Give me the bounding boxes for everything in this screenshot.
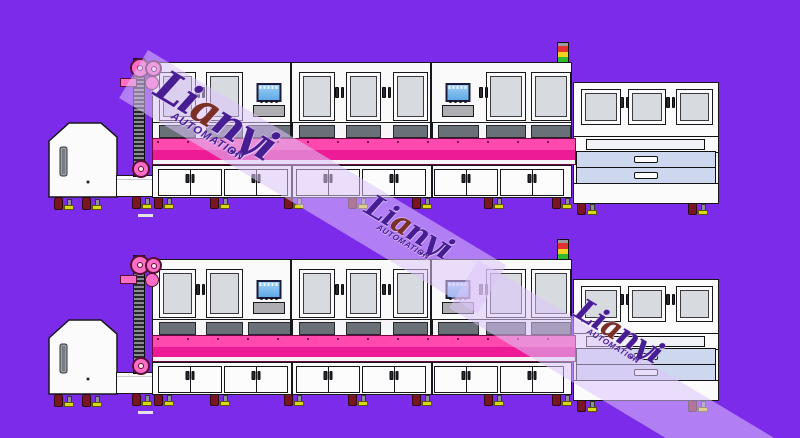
cabinet-window bbox=[393, 72, 428, 121]
elevator-pulley-bottom bbox=[132, 357, 150, 375]
table-inset bbox=[346, 125, 381, 138]
hopper-outfeed-table bbox=[116, 372, 153, 394]
door-handle-pair bbox=[620, 294, 629, 305]
cabinet-window bbox=[346, 269, 381, 318]
hopper-feeder bbox=[48, 122, 118, 198]
door-handle-pair bbox=[666, 97, 675, 108]
module-divider bbox=[291, 363, 293, 394]
dimension-mark bbox=[138, 214, 153, 217]
cabinet-window bbox=[206, 269, 243, 318]
door-handle-pair bbox=[620, 97, 629, 108]
station-window bbox=[628, 286, 666, 322]
door-handle-pair bbox=[252, 371, 261, 380]
door-handle-pair bbox=[186, 371, 195, 380]
module-divider bbox=[430, 63, 432, 123]
elevator-pulley-top-right bbox=[145, 257, 162, 274]
module-divider bbox=[430, 123, 433, 139]
elevator-pulley-bottom bbox=[132, 160, 150, 178]
door-handle-pair bbox=[382, 284, 391, 295]
station-drawer bbox=[576, 151, 716, 168]
hopper-outfeed-table bbox=[116, 175, 153, 197]
door-handle-pair bbox=[528, 371, 537, 380]
cabinet-door-pair bbox=[224, 366, 288, 393]
cabinet-window bbox=[299, 269, 335, 318]
module-divider bbox=[431, 363, 433, 394]
cabinet-window bbox=[486, 72, 526, 121]
caster bbox=[132, 196, 151, 209]
cabinet-door-pair bbox=[434, 169, 498, 196]
cabinet-door-pair bbox=[158, 366, 222, 393]
cabinet-door-pair bbox=[434, 366, 498, 393]
andon-signal-tower bbox=[557, 239, 569, 261]
cabinet-window bbox=[159, 269, 196, 318]
hmi-buttons bbox=[449, 100, 467, 103]
door-handle-pair bbox=[324, 371, 333, 380]
door-handle-pair bbox=[335, 87, 344, 98]
cabinet-door-pair bbox=[296, 366, 360, 393]
door-handle-pair bbox=[196, 284, 205, 295]
hmi-buttons bbox=[260, 297, 278, 300]
module-divider bbox=[430, 320, 433, 336]
table-inset bbox=[206, 322, 243, 335]
andon-signal-tower bbox=[557, 42, 569, 64]
cabinet-window bbox=[531, 72, 571, 121]
table-inset bbox=[393, 125, 428, 138]
cabinet-door-pair bbox=[158, 169, 222, 196]
door-handle-pair bbox=[390, 174, 399, 183]
table-inset bbox=[159, 322, 196, 335]
cabinet-window bbox=[346, 72, 381, 121]
cabinet-window bbox=[299, 72, 335, 121]
station-drawer bbox=[576, 167, 716, 184]
table-inset bbox=[531, 125, 571, 138]
cabinet-door-pair bbox=[500, 169, 564, 196]
door-handle-pair bbox=[335, 284, 344, 295]
door-handle-pair bbox=[666, 294, 675, 305]
strip-window bbox=[586, 139, 705, 150]
machine-lower-cabinets bbox=[152, 362, 572, 395]
elevator-roller-behind-window bbox=[145, 273, 159, 287]
caster bbox=[54, 197, 73, 210]
table-inset bbox=[299, 125, 335, 138]
station-window bbox=[676, 286, 713, 322]
hmi-panel bbox=[246, 260, 291, 320]
door-handle-pair bbox=[479, 87, 488, 98]
unload-station bbox=[573, 82, 719, 204]
station-window bbox=[676, 89, 713, 125]
caster bbox=[132, 393, 151, 406]
table-inset bbox=[248, 322, 291, 335]
drawing-canvas: Lianyi AUTOMATION Lianyi AUTOMATION Lian… bbox=[0, 0, 800, 438]
hmi-panel bbox=[436, 63, 479, 123]
table-inset bbox=[346, 322, 381, 335]
station-bottom-panel bbox=[574, 183, 718, 203]
station-window bbox=[628, 89, 666, 125]
door-handle-pair bbox=[186, 174, 195, 183]
table-inset bbox=[438, 125, 479, 138]
caster bbox=[82, 394, 101, 407]
door-handle-pair bbox=[462, 371, 471, 380]
cabinet-door-pair bbox=[362, 366, 426, 393]
door-handle-pair bbox=[462, 174, 471, 183]
hopper-feeder bbox=[48, 319, 118, 395]
elevator-arm bbox=[120, 275, 137, 284]
module-divider bbox=[290, 320, 293, 336]
table-inset bbox=[299, 322, 335, 335]
caster bbox=[82, 197, 101, 210]
module-divider bbox=[431, 166, 433, 197]
door-handle-pair bbox=[390, 371, 399, 380]
table-inset bbox=[486, 125, 526, 138]
dimension-mark bbox=[138, 411, 153, 414]
station-window bbox=[581, 89, 621, 125]
table-inset bbox=[393, 322, 428, 335]
door-handle-pair bbox=[382, 87, 391, 98]
caster bbox=[54, 394, 73, 407]
table-inset bbox=[438, 322, 479, 335]
hmi-buttons bbox=[260, 100, 278, 103]
keyboard-tray bbox=[253, 302, 285, 314]
door-handle-pair bbox=[528, 174, 537, 183]
keyboard-tray bbox=[442, 105, 474, 117]
